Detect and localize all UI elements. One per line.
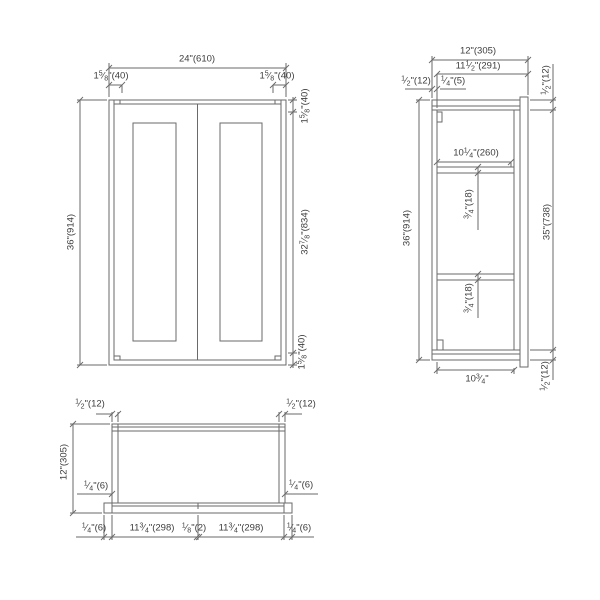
dim-front-width: 24"(610): [179, 54, 215, 64]
dim-plan-right-side: 1⁄2"(12): [286, 399, 316, 409]
dim-front-left-stile: 15⁄8"(40): [94, 71, 129, 81]
side-door-edge: [520, 97, 528, 367]
dim-side-back-panel: 1⁄2"(12): [401, 76, 431, 86]
side-view-dimensions: [405, 56, 556, 380]
side-cabinet-outline: [432, 100, 520, 360]
front-view: [109, 100, 286, 365]
dim-plan-left-reveal: 1⁄4"(6): [84, 481, 108, 491]
dim-side-interior-height: 35"(738): [542, 204, 552, 240]
dim-plan-bottom-4: 1⁄4"(6): [287, 523, 311, 533]
dim-side-inner-depth: 111⁄2"(291): [456, 61, 501, 71]
dim-plan-bottom-0: 1⁄4"(6): [82, 523, 106, 533]
dim-side-top-thickness: 1⁄2"(12): [541, 65, 551, 95]
dim-front-height: 36"(914): [66, 214, 76, 250]
front-dim-ticks: [77, 65, 296, 368]
front-notch: [275, 356, 281, 360]
dim-side-shelf-thickness-upper: 3⁄4"(18): [464, 189, 474, 219]
plan-view: [104, 424, 292, 513]
dim-side-reveal: 1⁄4"(5): [441, 76, 465, 86]
dim-front-door-height: 327⁄8"(834): [300, 209, 310, 255]
front-notch: [275, 100, 281, 104]
front-notch: [114, 100, 120, 104]
front-left-door-panel: [133, 123, 176, 341]
drawing-sheet: 24"(610) 15⁄8"(40) 15⁄8"(40) 36"(914) 15…: [0, 0, 600, 600]
front-view-dimensions: [77, 63, 297, 368]
dim-side-shelf-thickness-lower: 3⁄4"(18): [464, 283, 474, 313]
dim-plan-depth: 12"(305): [59, 444, 69, 480]
dim-side-interior-width: 103⁄4": [465, 374, 488, 384]
dim-front-top-rail: 15⁄8"(40): [300, 89, 310, 124]
dim-side-height: 36"(914): [402, 210, 412, 246]
dim-front-right-stile: 15⁄8"(40): [260, 71, 295, 81]
dim-side-bottom-thickness: 1⁄2"(12): [540, 361, 550, 391]
front-notch: [114, 356, 120, 360]
dim-plan-bottom-2: 1⁄8"(2): [182, 523, 206, 533]
front-right-door-panel: [220, 123, 262, 341]
side-notch: [437, 112, 442, 122]
dim-plan-bottom-1: 113⁄4"(298): [130, 523, 175, 533]
dim-side-depth: 12"(305): [460, 46, 496, 56]
side-view: [432, 97, 528, 367]
dim-plan-bottom-3: 113⁄4"(298): [219, 523, 264, 533]
side-notch: [437, 340, 443, 350]
dim-plan-right-reveal: 1⁄4"(6): [289, 480, 313, 490]
plan-view-dimensions: [70, 411, 318, 540]
dim-side-shelf-depth: 101⁄4"(260): [453, 148, 499, 158]
plan-cabinet-outline: [112, 424, 285, 503]
dim-front-bottom-rail: 15⁄8"(40): [297, 335, 307, 370]
dim-plan-left-side: 1⁄2"(12): [75, 399, 105, 409]
